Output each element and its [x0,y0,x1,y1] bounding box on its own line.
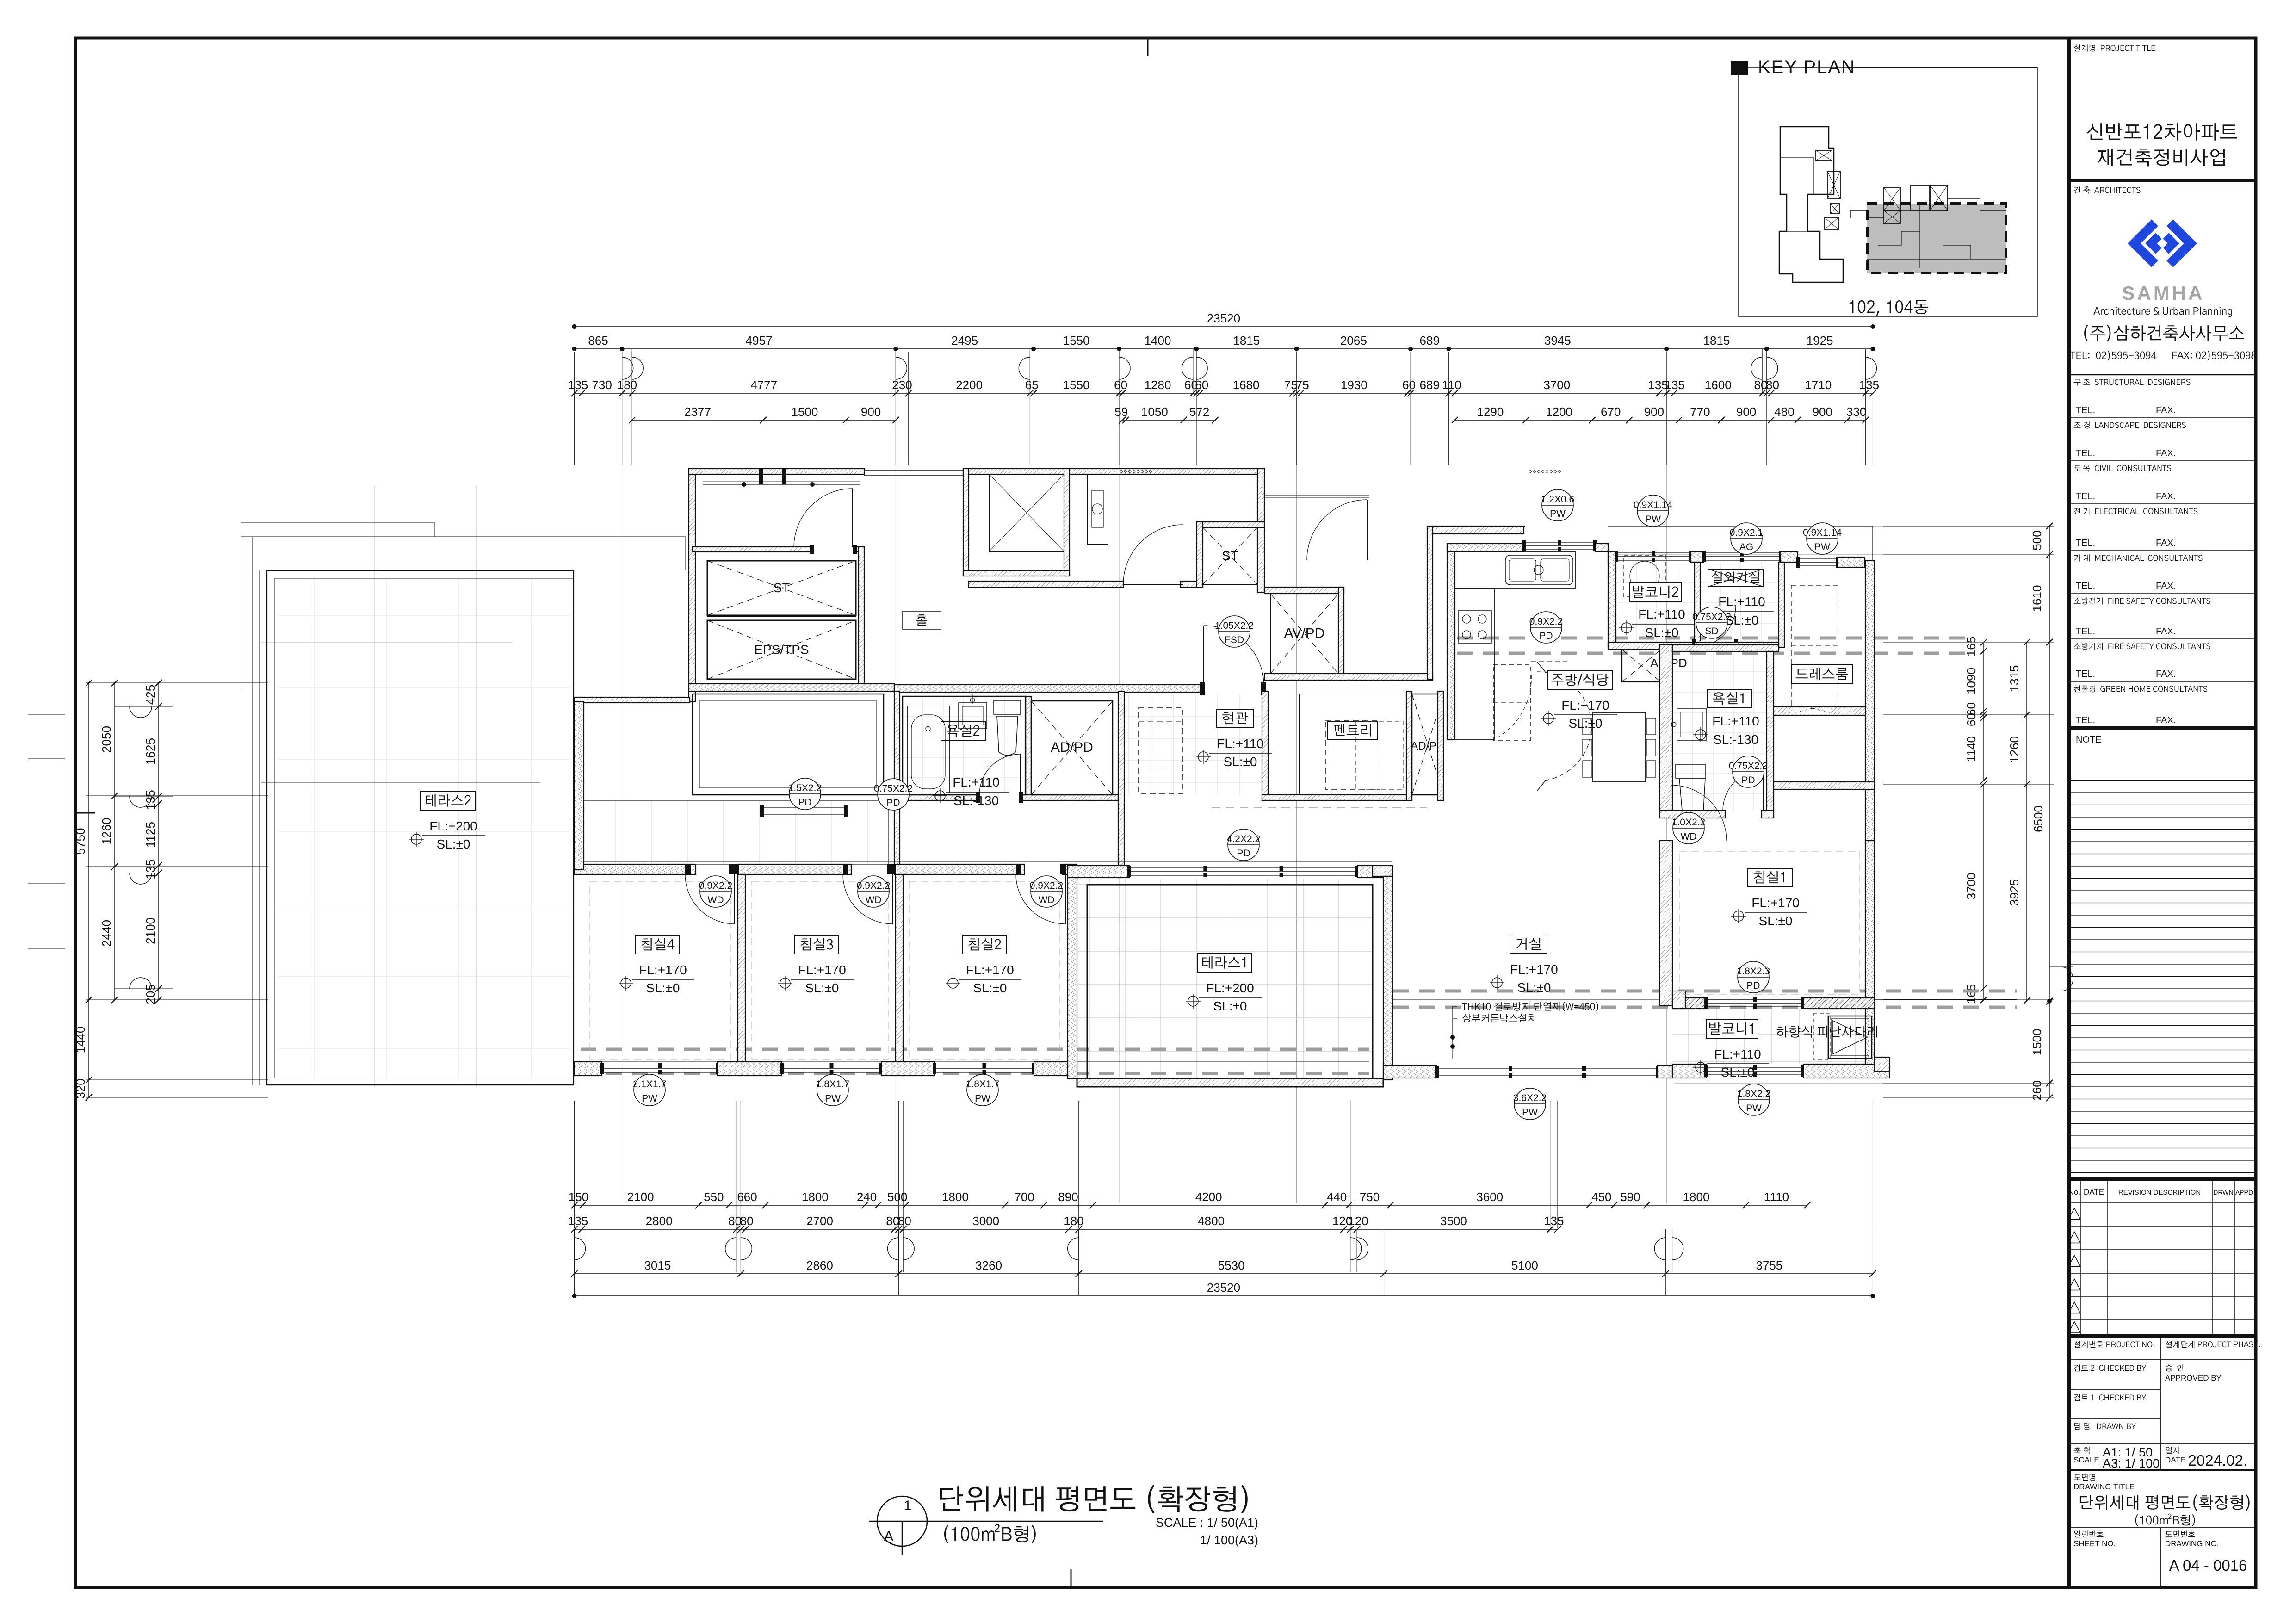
svg-text:PW: PW [1814,542,1830,552]
svg-text:FAX.: FAX. [2156,448,2176,458]
svg-text:500: 500 [887,1190,907,1204]
svg-text:PW: PW [1522,1107,1538,1118]
svg-text:5100: 5100 [1511,1258,1538,1272]
svg-text:60: 60 [1195,378,1208,392]
svg-text:1815: 1815 [1703,334,1730,347]
svg-text:0.9X2.2: 0.9X2.2 [1529,616,1563,627]
svg-text:FL:+170: FL:+170 [1510,962,1558,977]
svg-text:4957: 4957 [746,334,773,347]
svg-text:PD: PD [1746,980,1760,991]
svg-text:2.1X1.7: 2.1X1.7 [633,1079,666,1090]
svg-text:0.75X2.2: 0.75X2.2 [1729,761,1768,771]
svg-text:4200: 4200 [1195,1190,1222,1204]
svg-text:1680: 1680 [1233,378,1260,392]
svg-text:135: 135 [143,790,157,810]
svg-text:DRAWING TITLE: DRAWING TITLE [2073,1482,2135,1491]
svg-text:DRWN: DRWN [2213,1189,2233,1196]
svg-text:FL:+170: FL:+170 [966,963,1014,977]
svg-text:3500: 3500 [1440,1214,1467,1228]
svg-text:SHEET NO.: SHEET NO. [2073,1539,2116,1548]
svg-text:1925: 1925 [1807,334,1833,347]
svg-text:2024.02.: 2024.02. [2188,1452,2247,1469]
svg-text:AV/PD: AV/PD [1284,626,1325,641]
svg-text:TEL.: TEL. [2076,715,2095,725]
svg-text:SL:-130: SL:-130 [1713,732,1758,747]
svg-text:135: 135 [568,378,588,392]
svg-text:DATE: DATE [2084,1188,2104,1196]
svg-text:660: 660 [737,1190,757,1204]
svg-text:1710: 1710 [1805,378,1832,392]
svg-text:135: 135 [143,859,157,879]
svg-text:FL:+110: FL:+110 [1712,714,1759,728]
svg-text:1800: 1800 [802,1190,829,1204]
svg-text:165: 165 [1964,984,1978,1004]
svg-text:700: 700 [1014,1190,1034,1204]
svg-text:NOTE: NOTE [2076,735,2102,745]
svg-text:1.8X1.7: 1.8X1.7 [966,1079,999,1090]
svg-text:0.75X2.2: 0.75X2.2 [874,783,913,794]
svg-text:FAX.: FAX. [2156,538,2176,548]
svg-text:80: 80 [898,1214,911,1228]
svg-text:4800: 4800 [1198,1214,1225,1228]
svg-text:FL:+110: FL:+110 [1718,595,1765,609]
svg-text:PW: PW [825,1093,841,1104]
svg-text:3000: 3000 [972,1214,999,1228]
svg-text:205: 205 [143,984,157,1004]
svg-text:SL:±0: SL:±0 [437,837,470,851]
svg-text:SL:-130: SL:-130 [953,793,999,808]
svg-text:TEL.: TEL. [2076,626,2095,637]
svg-text:6500: 6500 [2031,805,2045,832]
svg-text:PD: PD [1237,848,1250,859]
svg-text:1050: 1050 [1141,405,1168,419]
svg-text:135: 135 [1859,378,1879,392]
svg-text:1600: 1600 [1705,378,1732,392]
svg-text:572: 572 [1189,405,1209,419]
svg-text:APPROVED BY: APPROVED BY [2165,1374,2222,1382]
svg-text:1610: 1610 [2030,585,2044,612]
svg-text:450: 450 [1591,1190,1611,1204]
svg-text:FAX.: FAX. [2156,669,2176,679]
svg-text:WD: WD [1681,831,1697,842]
svg-text:689: 689 [1420,334,1440,347]
svg-text:SL:±0: SL:±0 [1517,980,1551,995]
svg-text:1930: 1930 [1341,378,1368,392]
svg-text:1440: 1440 [74,1027,87,1053]
svg-text:1260: 1260 [99,818,113,845]
svg-text:PW: PW [1746,1103,1762,1114]
svg-text:A: A [884,1529,893,1544]
svg-text:180: 180 [617,378,637,392]
svg-text:0.9X2.2: 0.9X2.2 [1030,880,1063,891]
svg-text:SL:±0: SL:±0 [805,981,839,995]
svg-text:1: 1 [904,1498,912,1513]
svg-text:PD: PD [798,797,811,808]
svg-text:1315: 1315 [2007,665,2021,692]
svg-text:0.9X2.2: 0.9X2.2 [699,880,732,891]
svg-text:550: 550 [704,1190,724,1204]
svg-text:FSD: FSD [1225,635,1244,645]
svg-text:TEL.: TEL. [2076,491,2095,502]
svg-text:TEL.: TEL. [2076,405,2095,415]
svg-text:3700: 3700 [1964,873,1978,900]
svg-text:FAX.: FAX. [2156,715,2176,725]
svg-text:5750: 5750 [74,828,87,855]
svg-text:2495: 2495 [951,334,978,347]
svg-text:PW: PW [975,1093,990,1104]
svg-text:180: 180 [1064,1214,1083,1228]
svg-text:REVISION DESCRIPTION: REVISION DESCRIPTION [2118,1189,2201,1196]
svg-text:900: 900 [1644,405,1664,419]
svg-text:3925: 3925 [2007,879,2021,906]
svg-text:730: 730 [592,378,612,392]
svg-text:3755: 3755 [1756,1258,1782,1272]
svg-text:1.0X2.2: 1.0X2.2 [1672,817,1705,828]
svg-text:1/ 100(A3): 1/ 100(A3) [1200,1533,1258,1547]
svg-text:FAX.: FAX. [2156,405,2176,415]
svg-text:1.5X2.2: 1.5X2.2 [788,783,822,793]
svg-text:890: 890 [1058,1190,1078,1204]
svg-text:260: 260 [2030,1080,2044,1100]
svg-text:1260: 1260 [2007,736,2021,763]
svg-text:330: 330 [1846,405,1866,419]
svg-text:FL:+170: FL:+170 [639,963,687,977]
svg-text:2065: 2065 [1340,334,1367,347]
svg-text:900: 900 [861,405,881,419]
svg-text:3015: 3015 [644,1258,671,1272]
svg-text:3260: 3260 [975,1258,1002,1272]
svg-text:APPD: APPD [2235,1189,2253,1196]
svg-text:1125: 1125 [143,822,157,848]
svg-text:60: 60 [1114,378,1127,392]
svg-text:SAMHA: SAMHA [2122,282,2205,304]
svg-text:AG: AG [1739,542,1753,552]
svg-text:PD: PD [1539,631,1553,641]
svg-text:2050: 2050 [99,726,113,753]
svg-text:65: 65 [1025,378,1039,392]
svg-text:TEL.: TEL. [2076,538,2095,548]
svg-text:3600: 3600 [1476,1190,1503,1204]
svg-text:1.2X0.6: 1.2X0.6 [1541,494,1574,505]
svg-text:1140: 1140 [1964,736,1978,762]
svg-text:0.9X2.2: 0.9X2.2 [857,880,890,891]
svg-text:DRAWING NO.: DRAWING NO. [2165,1539,2219,1548]
svg-text:865: 865 [588,334,608,347]
svg-text:165: 165 [1964,637,1978,657]
svg-text:110: 110 [1442,378,1461,392]
svg-text:FL:+170: FL:+170 [798,963,846,977]
svg-text:SL:±0: SL:±0 [646,981,680,995]
svg-text:1550: 1550 [1063,378,1090,392]
svg-text:1280: 1280 [1145,378,1171,392]
svg-text:0.9X2.1: 0.9X2.1 [1730,527,1763,538]
svg-text:1090: 1090 [1964,668,1978,694]
svg-text:0.9X1.14: 0.9X1.14 [1803,527,1842,538]
svg-text:FAX.: FAX. [2156,491,2176,502]
svg-text:2377: 2377 [684,405,711,419]
svg-text:PD: PD [1741,775,1755,786]
svg-text:1.8X2.2: 1.8X2.2 [1737,1089,1770,1099]
svg-text:1800: 1800 [1683,1190,1710,1204]
svg-text:FL:+110: FL:+110 [1714,1047,1761,1061]
svg-text:FAX.: FAX. [2156,626,2176,637]
svg-text:ST: ST [1222,549,1238,563]
svg-text:ST: ST [774,581,790,595]
svg-text:FAX.: FAX. [2156,581,2176,591]
svg-text:TEL.: TEL. [2076,669,2095,679]
svg-text:320: 320 [74,1078,87,1098]
svg-text:SCALE: SCALE [2073,1456,2099,1464]
svg-text:SCALE : 1/ 50(A1): SCALE : 1/ 50(A1) [1156,1516,1258,1530]
svg-text:480: 480 [1774,405,1794,419]
svg-text:1110: 1110 [1764,1190,1789,1204]
svg-text:SL:±0: SL:±0 [1224,755,1257,769]
svg-text:1815: 1815 [1233,334,1260,347]
svg-text:3700: 3700 [1543,378,1570,392]
svg-text:1800: 1800 [942,1190,969,1204]
svg-text:1550: 1550 [1063,334,1090,347]
svg-text:750: 750 [1360,1190,1380,1204]
svg-text:TEL.: TEL. [2076,448,2095,458]
svg-text:135: 135 [1665,378,1685,392]
svg-text:500: 500 [2030,530,2044,550]
svg-text:3945: 3945 [1544,334,1571,347]
svg-text:120: 120 [1348,1214,1368,1228]
svg-text:PW: PW [642,1093,657,1104]
svg-text:2200: 2200 [956,378,983,392]
svg-text:SL:±0: SL:±0 [973,981,1007,995]
svg-text:770: 770 [1690,405,1710,419]
svg-text:240: 240 [857,1190,877,1204]
svg-text:SL:±0: SL:±0 [1645,626,1679,640]
svg-text:SL:±0: SL:±0 [1759,914,1793,928]
svg-text:1400: 1400 [1145,334,1171,347]
svg-text:1.8X1.7: 1.8X1.7 [816,1079,849,1090]
svg-text:PW: PW [1645,514,1661,525]
svg-text:SL:±0: SL:±0 [1569,716,1603,731]
svg-text:900: 900 [1813,405,1832,419]
svg-text:2700: 2700 [806,1214,833,1228]
svg-text:23520: 23520 [1207,311,1240,325]
svg-text:KEY PLAN: KEY PLAN [1758,57,1856,77]
svg-text:2100: 2100 [143,917,157,944]
svg-text:135: 135 [1544,1214,1564,1228]
svg-text:DATE: DATE [2165,1456,2185,1464]
svg-text:80: 80 [1766,378,1779,392]
svg-text:SD: SD [1705,626,1718,637]
svg-text:SL:±0: SL:±0 [1721,1065,1755,1079]
svg-text:0.9X1.14: 0.9X1.14 [1634,500,1672,510]
svg-text:23520: 23520 [1207,1281,1240,1295]
svg-text:PD: PD [886,798,900,808]
svg-text:TEL.: TEL. [2076,581,2095,591]
svg-text:60: 60 [1402,378,1416,392]
svg-text:2440: 2440 [99,920,113,947]
svg-text:A3: 1/ 100: A3: 1/ 100 [2103,1456,2160,1470]
svg-text:135: 135 [568,1214,588,1228]
svg-text:SL:±0: SL:±0 [1213,999,1247,1013]
svg-text:1.8X2.3: 1.8X2.3 [1737,966,1770,977]
svg-text:5530: 5530 [1218,1258,1245,1272]
svg-text:FL:+200: FL:+200 [429,819,477,833]
svg-text:80: 80 [740,1214,754,1228]
svg-text:FL:+110: FL:+110 [953,775,999,789]
svg-text:A 04 - 0016: A 04 - 0016 [2169,1557,2247,1574]
svg-text:FL:+110: FL:+110 [1638,607,1685,621]
svg-text:1625: 1625 [143,738,157,765]
svg-text:PW: PW [1550,508,1566,519]
svg-text:WD: WD [1039,895,1055,905]
svg-text:AD/PD: AD/PD [1051,740,1093,755]
svg-text:1290: 1290 [1477,405,1504,419]
svg-text:425: 425 [143,685,157,705]
svg-text:4777: 4777 [750,378,777,392]
svg-text:1.05X2.2: 1.05X2.2 [1215,620,1254,631]
svg-text:No.: No. [2068,1188,2080,1196]
svg-text:590: 590 [1620,1190,1640,1204]
svg-text:0.75X2.2: 0.75X2.2 [1692,612,1731,622]
svg-text:3.6X2.2: 3.6X2.2 [1513,1093,1547,1103]
svg-text:670: 670 [1601,405,1621,419]
svg-text:2100: 2100 [627,1190,654,1204]
svg-text:440: 440 [1327,1190,1347,1204]
svg-text:150: 150 [569,1190,588,1204]
svg-text:75: 75 [1296,378,1309,392]
svg-text:1500: 1500 [2030,1029,2044,1056]
svg-text:FL:+110: FL:+110 [1217,737,1263,751]
svg-text:FL:+170: FL:+170 [1751,896,1800,910]
svg-text:1200: 1200 [1546,405,1572,419]
svg-text:2800: 2800 [646,1214,673,1228]
svg-text:4.2X2.2: 4.2X2.2 [1227,834,1260,844]
svg-text:FL:+170: FL:+170 [1561,698,1609,712]
svg-text:WD: WD [866,895,882,905]
svg-text:230: 230 [892,378,912,392]
svg-text:WD: WD [708,895,724,905]
svg-text:EPS/TPS: EPS/TPS [754,643,809,657]
svg-text:689: 689 [1420,378,1440,392]
svg-text:2860: 2860 [806,1258,833,1272]
svg-text:1500: 1500 [791,405,818,419]
svg-text:59: 59 [1114,405,1128,419]
svg-text:FL:+200: FL:+200 [1206,981,1254,995]
svg-text:900: 900 [1736,405,1756,419]
